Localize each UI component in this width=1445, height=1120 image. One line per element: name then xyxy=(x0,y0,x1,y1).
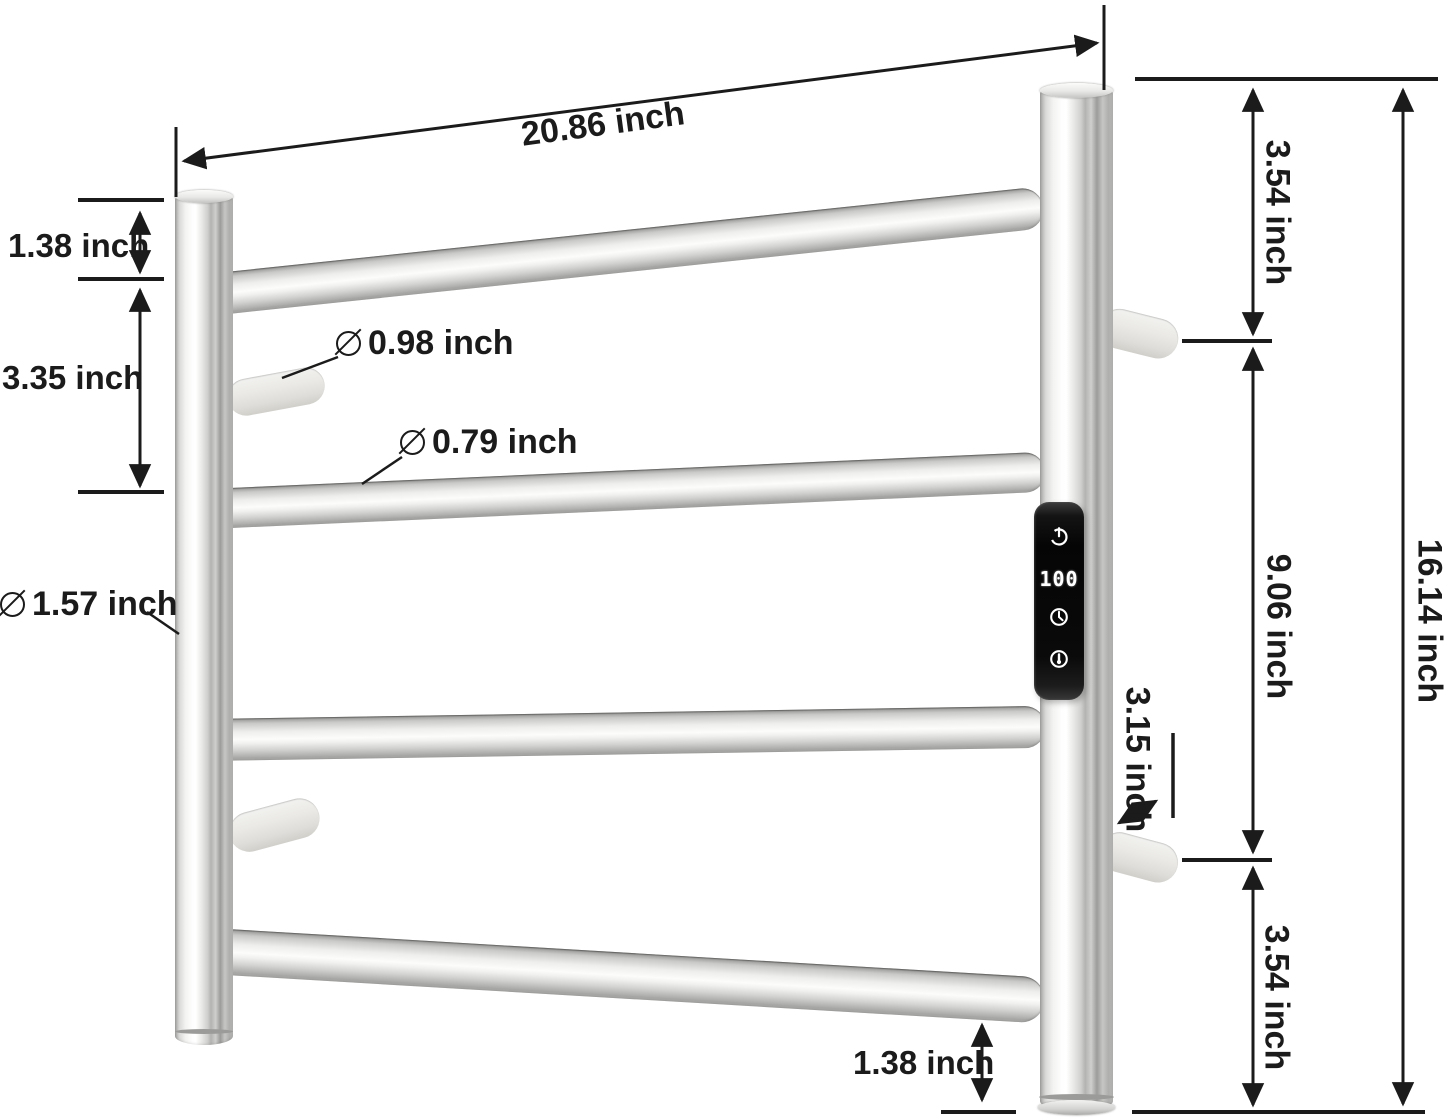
label-right-bottom-section: 3.54 inch xyxy=(1206,976,1346,1013)
left-post-top-cap xyxy=(175,190,233,203)
label-right-middle-section: 9.06 inch xyxy=(1208,605,1348,642)
left-post xyxy=(175,196,233,1045)
label-post-diameter: 1.57 inch xyxy=(0,586,178,623)
label-top-width-text: 20.86 inch xyxy=(516,95,689,155)
label-rung-diameter: 0.79 inch xyxy=(400,424,578,461)
label-right-bottom-section-text: 3.54 inch xyxy=(1257,925,1294,1065)
towel-bar-4 xyxy=(209,928,1046,1023)
label-right-top-section: 3.54 inch xyxy=(1207,191,1347,228)
label-left-rung-spacing: 3.35 inch xyxy=(2,360,143,396)
towel-bar-3 xyxy=(208,706,1047,761)
label-bottom-offset: 1.38 inch xyxy=(853,1045,994,1081)
temperature-display: 100 xyxy=(1034,568,1084,590)
towel-bar-2 xyxy=(207,452,1046,529)
label-left-top-offset: 1.38 inch xyxy=(8,228,149,264)
label-bracket-depth: 3.15 inch xyxy=(1072,733,1202,770)
label-total-height-text: 16.14 inch xyxy=(1410,539,1445,699)
diameter-icon xyxy=(336,331,361,356)
right-post-bottom-ring xyxy=(1039,1094,1114,1100)
left-post-bottom-ring xyxy=(175,1029,233,1034)
label-bracket-diameter: 0.98 inch xyxy=(336,325,514,362)
wall-bracket-lower-left xyxy=(225,794,324,856)
label-top-width: 20.86 inch xyxy=(518,106,688,143)
thermometer-icon[interactable] xyxy=(1048,648,1070,670)
clock-timer-icon[interactable] xyxy=(1048,606,1070,628)
power-icon[interactable] xyxy=(1048,525,1070,547)
wall-bracket-upper-left xyxy=(225,364,328,418)
label-right-top-section-text: 3.54 inch xyxy=(1258,140,1295,280)
right-post-top-cap xyxy=(1040,83,1113,98)
towel-rack-dimension-diagram: 100 xyxy=(0,0,1445,1120)
label-post-diameter-text: 1.57 inch xyxy=(32,586,178,623)
label-bracket-diameter-text: 0.98 inch xyxy=(368,325,514,362)
digital-control-panel: 100 xyxy=(1034,502,1084,700)
label-bracket-depth-text: 3.15 inch xyxy=(1118,687,1155,817)
label-rung-diameter-text: 0.79 inch xyxy=(432,424,578,461)
diameter-icon xyxy=(400,430,425,455)
diameter-icon xyxy=(0,592,25,617)
towel-bar-1 xyxy=(206,186,1046,316)
label-total-height: 16.14 inch xyxy=(1349,600,1445,637)
right-post-base xyxy=(1038,1100,1115,1115)
label-right-middle-section-text: 9.06 inch xyxy=(1259,554,1296,694)
